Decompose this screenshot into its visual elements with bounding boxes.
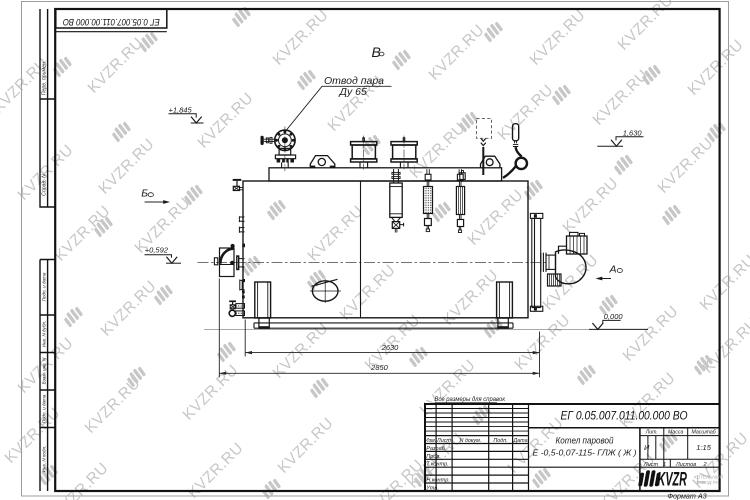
svg-text:Перв. примен.: Перв. примен. — [42, 61, 48, 95]
svg-text:Лист: Лист — [436, 438, 451, 444]
svg-text:А: А — [609, 263, 617, 275]
svg-text:Листов: Листов — [675, 462, 696, 468]
svg-text:Инв. N дубл.: Инв. N дубл. — [41, 321, 46, 348]
svg-text:КОТЕЛЬНЫЙ: КОТЕЛЬНЫЙ — [694, 472, 724, 479]
svg-text:Справ. N: Справ. N — [42, 174, 48, 196]
svg-text:В: В — [372, 44, 381, 60]
svg-text:Т.контр.: Т.контр. — [426, 462, 449, 468]
svg-text:ЕГ 0.05.007.011.00.000 ВО: ЕГ 0.05.007.011.00.000 ВО — [63, 17, 160, 27]
svg-text:Б: Б — [141, 188, 148, 200]
svg-text:Подп. и дата: Подп. и дата — [41, 394, 46, 423]
svg-text:Инв. N подл.: Инв. N подл. — [41, 446, 46, 473]
svg-text:Масштаб: Масштаб — [691, 430, 716, 436]
svg-text:Масса: Масса — [668, 430, 683, 436]
svg-text:Подп.: Подп. — [493, 438, 507, 444]
svg-text:Разраб.: Разраб. — [426, 446, 446, 452]
svg-text:Формат А3: Формат А3 — [667, 492, 706, 500]
svg-text:ЕГ 0.05.007.011.00.000 ВО: ЕГ 0.05.007.011.00.000 ВО — [561, 409, 688, 423]
svg-text:Дата: Дата — [512, 438, 527, 444]
svg-text:Е -0,5-0,07-115- ГЛЖ ( Ж ): Е -0,5-0,07-115- ГЛЖ ( Ж ) — [533, 449, 637, 458]
svg-text:+0,592: +0,592 — [145, 246, 169, 255]
svg-text:Ду 65: Ду 65 — [339, 86, 368, 98]
svg-text:1,630: 1,630 — [623, 128, 643, 137]
svg-text:ЗАВОД РУ: ЗАВОД РУ — [696, 480, 720, 485]
svg-text:Лит.: Лит. — [645, 430, 658, 436]
svg-text:Пров.: Пров. — [426, 454, 441, 460]
svg-text:+1,845: +1,845 — [169, 105, 193, 114]
svg-text:Утв.: Утв. — [425, 485, 439, 491]
svg-text:Н.контр.: Н.контр. — [426, 478, 450, 484]
svg-text:N докум.: N докум. — [459, 438, 481, 444]
svg-text:KVZR: KVZR — [658, 470, 688, 491]
svg-text:1: 1 — [663, 462, 666, 468]
svg-text:1:15: 1:15 — [696, 443, 711, 452]
svg-text:Взам. инв. N: Взам. инв. N — [41, 357, 46, 384]
svg-text:0,000: 0,000 — [604, 312, 624, 321]
svg-text:Лист: Лист — [643, 462, 659, 468]
svg-text:Котел паровой: Котел паровой — [556, 435, 614, 445]
svg-text:2630: 2630 — [381, 343, 400, 352]
svg-text:Все размеры для справок: Все размеры для справок — [435, 395, 506, 403]
svg-text:Изм.: Изм. — [425, 438, 437, 444]
svg-text:2850: 2850 — [370, 363, 389, 372]
svg-text:И: И — [644, 443, 650, 452]
svg-text:Подп. и дата: Подп. и дата — [41, 272, 46, 301]
